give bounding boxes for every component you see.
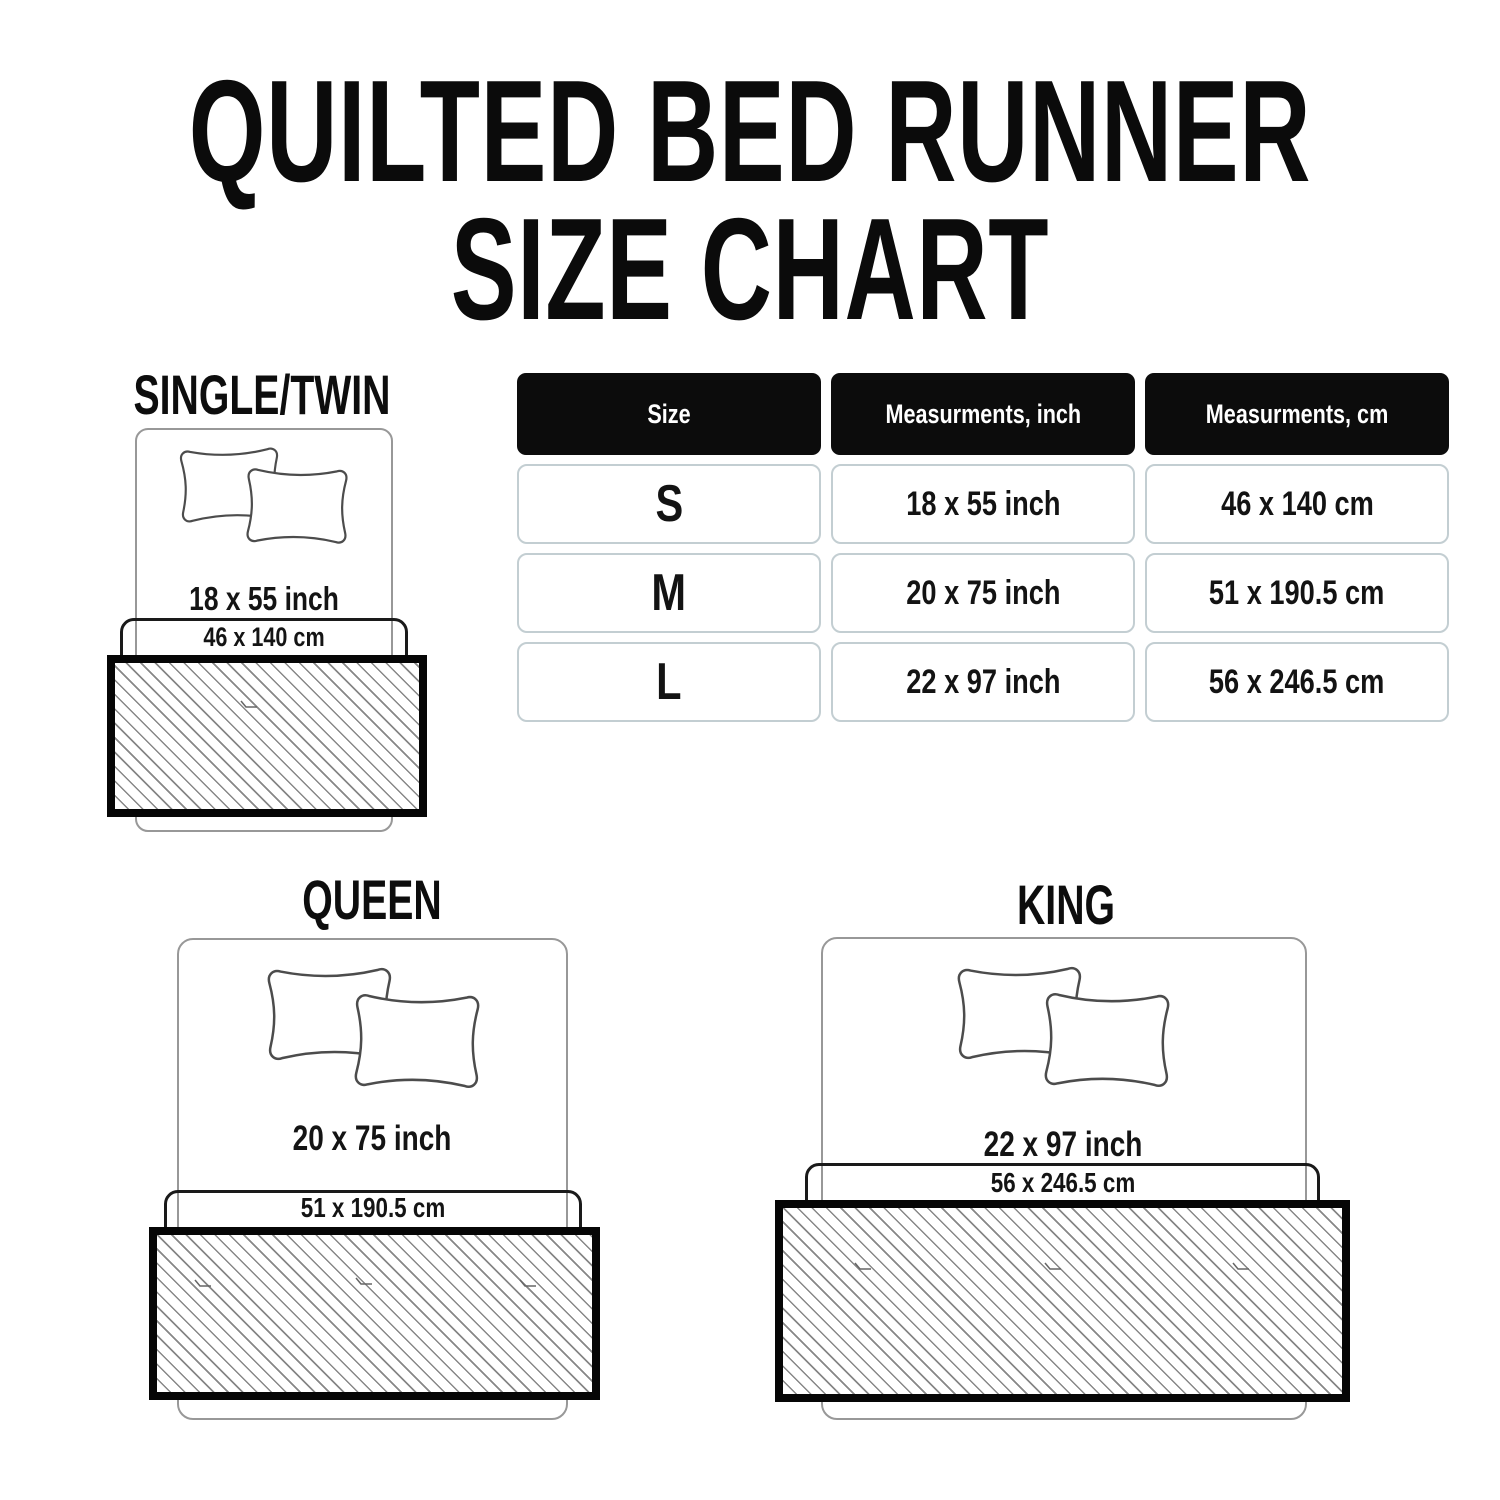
inch-l-value: 22 x 97 inch xyxy=(906,663,1060,702)
stitch-mark-icon xyxy=(1044,1262,1062,1271)
runner-swatch xyxy=(775,1200,1350,1402)
runner-swatch xyxy=(107,655,427,817)
stitch-mark-icon xyxy=(355,1277,373,1286)
table-cell-cm-s: 46 x 140 cm xyxy=(1145,464,1449,544)
runner-size-inch-label: 22 x 97 inch xyxy=(984,1125,1143,1165)
table-cell-cm-m: 51 x 190.5 cm xyxy=(1145,553,1449,633)
table-header-cm: Measurments, cm xyxy=(1145,373,1449,455)
inch-s-value: 18 x 55 inch xyxy=(906,485,1060,524)
runner-size-cm-label: 56 x 246.5 cm xyxy=(991,1167,1135,1199)
stitch-mark-icon xyxy=(854,1262,872,1271)
size-table: Size Measurments, inch Measurments, cm S… xyxy=(517,373,1449,722)
table-header-size: Size xyxy=(517,373,821,455)
size-s-value: S xyxy=(655,474,683,534)
size-l-value: L xyxy=(656,652,681,712)
table-cell-inch-l: 22 x 97 inch xyxy=(831,642,1135,722)
runner-swatch xyxy=(149,1227,600,1400)
runner-size-inch-label: 20 x 75 inch xyxy=(293,1119,452,1159)
size-m-value: M xyxy=(652,563,687,623)
diagram-title: KING xyxy=(1017,872,1115,937)
pillow-icon xyxy=(1038,989,1176,1091)
stitch-mark-icon xyxy=(519,1279,537,1288)
table-cell-cm-l: 56 x 246.5 cm xyxy=(1145,642,1449,722)
diagram-title: QUEEN xyxy=(302,867,441,932)
pillow-icon xyxy=(348,990,486,1092)
table-header-cm-label: Measurments, cm xyxy=(1206,399,1388,430)
stitch-mark-icon xyxy=(194,1279,212,1288)
size-chart-page: QUILTED BED RUNNER SIZE CHART Size Measu… xyxy=(0,0,1500,1500)
table-cell-size-l: L xyxy=(517,642,821,722)
runner-size-inch-label: 18 x 55 inch xyxy=(189,580,339,618)
cm-m-value: 51 x 190.5 cm xyxy=(1209,574,1384,613)
table-cell-inch-m: 20 x 75 inch xyxy=(831,553,1135,633)
page-title-line2: SIZE CHART xyxy=(451,186,1049,353)
inch-m-value: 20 x 75 inch xyxy=(906,574,1060,613)
table-cell-size-m: M xyxy=(517,553,821,633)
table-cell-inch-s: 18 x 55 inch xyxy=(831,464,1135,544)
diagram-title: SINGLE/TWIN xyxy=(134,362,391,427)
runner-size-cm-label: 46 x 140 cm xyxy=(203,622,324,653)
table-header-inch: Measurments, inch xyxy=(831,373,1135,455)
stitch-mark-icon xyxy=(240,700,258,709)
table-cell-size-s: S xyxy=(517,464,821,544)
pillow-icon xyxy=(241,465,352,547)
table-header-inch-label: Measurments, inch xyxy=(885,399,1081,430)
cm-l-value: 56 x 246.5 cm xyxy=(1209,663,1384,702)
runner-size-cm-label: 51 x 190.5 cm xyxy=(301,1192,445,1224)
stitch-mark-icon xyxy=(1232,1262,1250,1271)
table-header-size-label: Size xyxy=(647,399,690,430)
cm-s-value: 46 x 140 cm xyxy=(1221,485,1374,524)
